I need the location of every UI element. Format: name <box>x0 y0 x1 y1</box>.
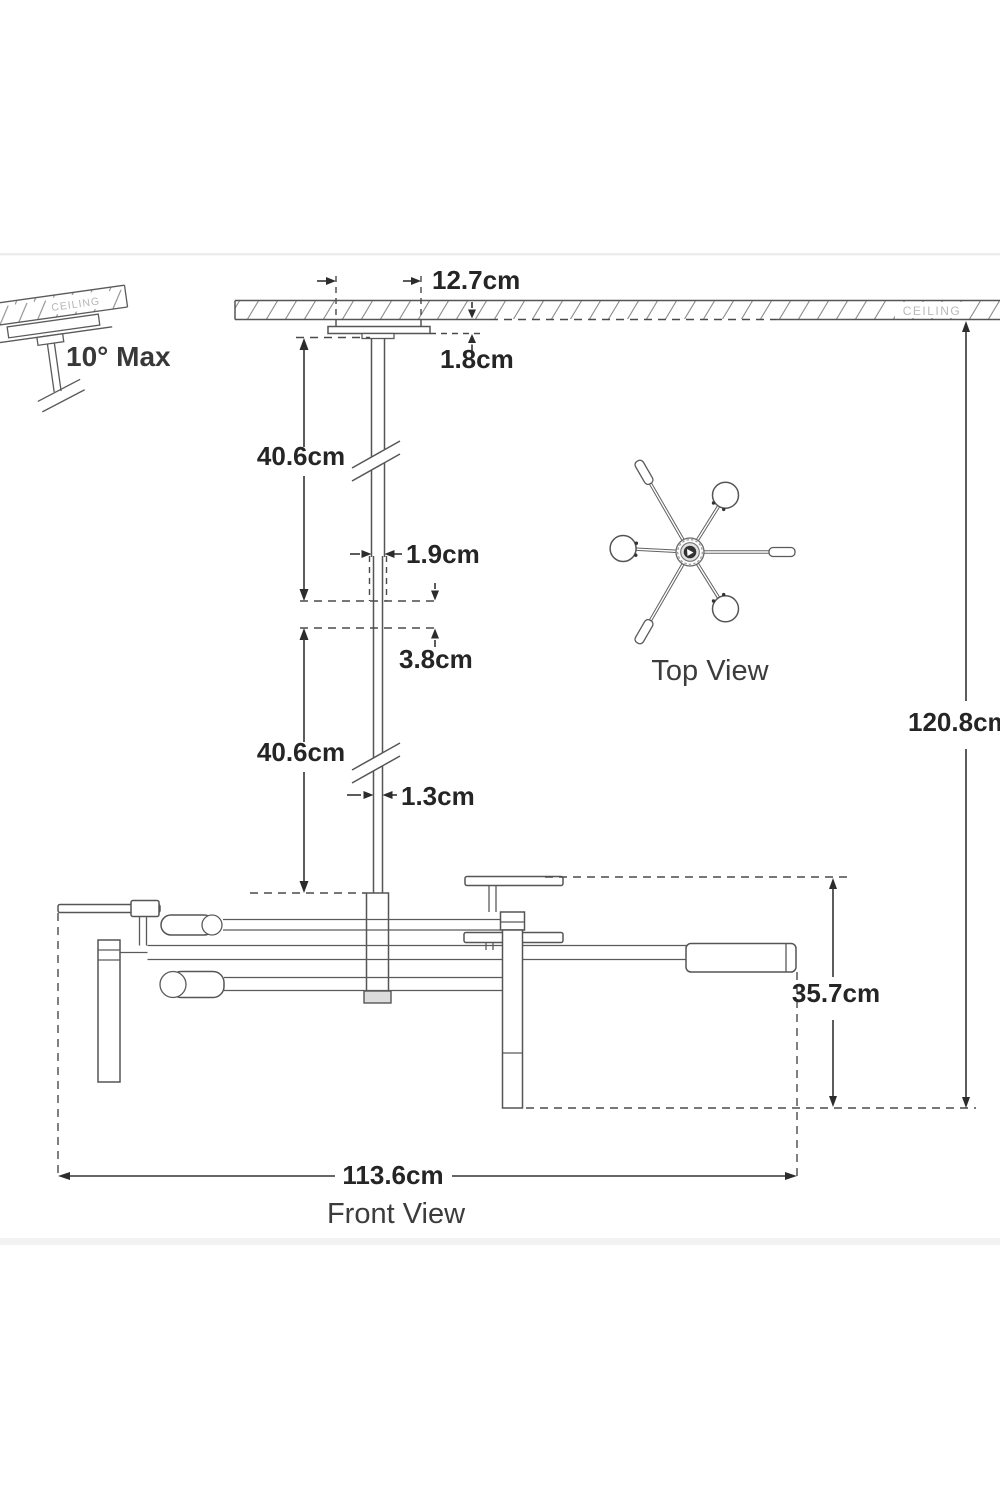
top-divider <box>0 253 1000 256</box>
left-lower-capsule-ball <box>160 972 186 998</box>
canopy-plate <box>328 327 430 334</box>
right-cylinder-shade <box>503 930 523 1108</box>
right-cylinder-collar <box>501 912 525 930</box>
front-view-label: Front View <box>327 1198 466 1230</box>
right-top-disc <box>465 877 563 886</box>
left-disc-block <box>131 901 159 917</box>
rod-overlap-value: 3.8cm <box>399 644 473 674</box>
ceiling-hatch <box>235 301 1000 319</box>
canopy-width-value: 12.7cm <box>432 265 520 295</box>
top-view-globe-left <box>610 536 636 562</box>
dimension-diagram: CEILING CEILING 10° Max <box>0 0 1000 1500</box>
lower-rod-length-value: 40.6cm <box>257 737 345 767</box>
upper-rod-width-value: 1.9cm <box>406 539 480 569</box>
left-cylinder-shade <box>98 940 120 1082</box>
overall-height-value: 120.8cm <box>908 707 1000 737</box>
tilt-note: 10° Max <box>66 341 171 372</box>
canopy-height-value: 1.8cm <box>440 344 514 374</box>
center-hub-cap <box>364 991 391 1003</box>
ceiling-band: CEILING <box>235 301 1000 320</box>
upper-rod-length-value: 40.6cm <box>257 441 345 471</box>
left-upper-capsule-ball <box>202 915 222 935</box>
top-view-globe-upper-right <box>713 482 739 508</box>
spec-sheet-page: CEILING CEILING 10° Max <box>0 0 1000 1500</box>
right-capsule-shade <box>686 944 796 973</box>
overall-width-value: 113.6cm <box>342 1160 443 1190</box>
lower-rod-width-value: 1.3cm <box>401 781 475 811</box>
bottom-divider <box>0 1238 1000 1245</box>
top-view-globe-lower-right <box>713 596 739 622</box>
top-view-capsule-right <box>769 548 795 557</box>
top-view-label: Top View <box>651 655 769 687</box>
body-height-value: 35.7cm <box>792 978 880 1008</box>
page-background <box>0 0 1000 1500</box>
ceiling-label: CEILING <box>903 304 962 318</box>
